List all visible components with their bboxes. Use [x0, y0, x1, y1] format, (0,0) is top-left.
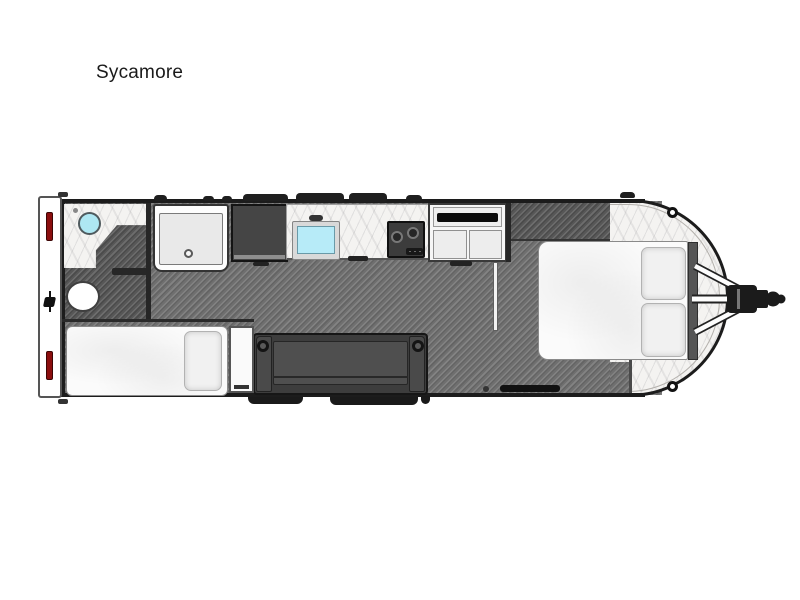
vanity-vent — [112, 268, 148, 275]
cupholder-icon — [412, 340, 424, 352]
pillow — [184, 331, 222, 391]
bathroom-sink — [78, 212, 101, 235]
bed-area-wall — [62, 319, 254, 322]
awning-bracket-icon — [203, 196, 214, 201]
privacy-partition — [493, 262, 498, 331]
awning-bracket-icon — [154, 195, 167, 201]
bathroom-wall — [146, 203, 151, 322]
toilet — [66, 281, 100, 312]
cabinet-base-mark — [450, 261, 472, 266]
marker-light-icon — [58, 192, 68, 197]
refrigerator — [231, 204, 288, 262]
tail-light-icon — [46, 212, 53, 241]
hitch-coupler — [727, 285, 786, 313]
roof-vent-icon — [296, 193, 344, 202]
burner-icon — [391, 231, 403, 243]
sofa-back-line — [273, 376, 408, 378]
entry-step-exterior — [330, 397, 418, 405]
nightstand-mark — [234, 385, 249, 389]
cabinet-door — [433, 230, 467, 259]
hitch-a-frame — [600, 190, 800, 410]
stabilizer-foot-icon — [421, 396, 430, 404]
tv-icon — [437, 213, 498, 222]
roof-vent-icon — [406, 195, 422, 201]
nightstand — [229, 326, 254, 393]
tail-light-icon — [46, 351, 53, 380]
bedroom-wall — [506, 203, 511, 262]
door-hinge-icon — [483, 386, 489, 392]
burner-icon — [407, 227, 419, 239]
kitchen-sink — [297, 226, 335, 254]
roof-vent-icon — [349, 193, 387, 202]
shower-drain-icon — [184, 249, 193, 258]
rear-handle-icon — [43, 297, 56, 307]
kitchen-faucet-icon — [309, 215, 323, 221]
entry-step — [500, 385, 560, 392]
marker-light-icon — [58, 399, 68, 404]
entry-step-exterior — [248, 397, 303, 404]
cabinet-door — [469, 230, 502, 259]
refrigerator-base — [234, 255, 285, 259]
counter-edge-mark — [348, 256, 368, 261]
cupholder-icon — [257, 340, 269, 352]
faucet-icon — [73, 208, 78, 213]
bedroom-slide-floor — [510, 203, 610, 241]
sofa-seat — [273, 341, 408, 385]
cooktop-knobs-icon — [406, 248, 423, 255]
floorplan-canvas: Sycamore — [0, 0, 800, 600]
floorplan-title: Sycamore — [96, 62, 183, 84]
fridge-vent-mark — [253, 262, 269, 266]
roof-vent-icon — [243, 194, 288, 201]
awning-bracket-icon — [222, 196, 232, 201]
